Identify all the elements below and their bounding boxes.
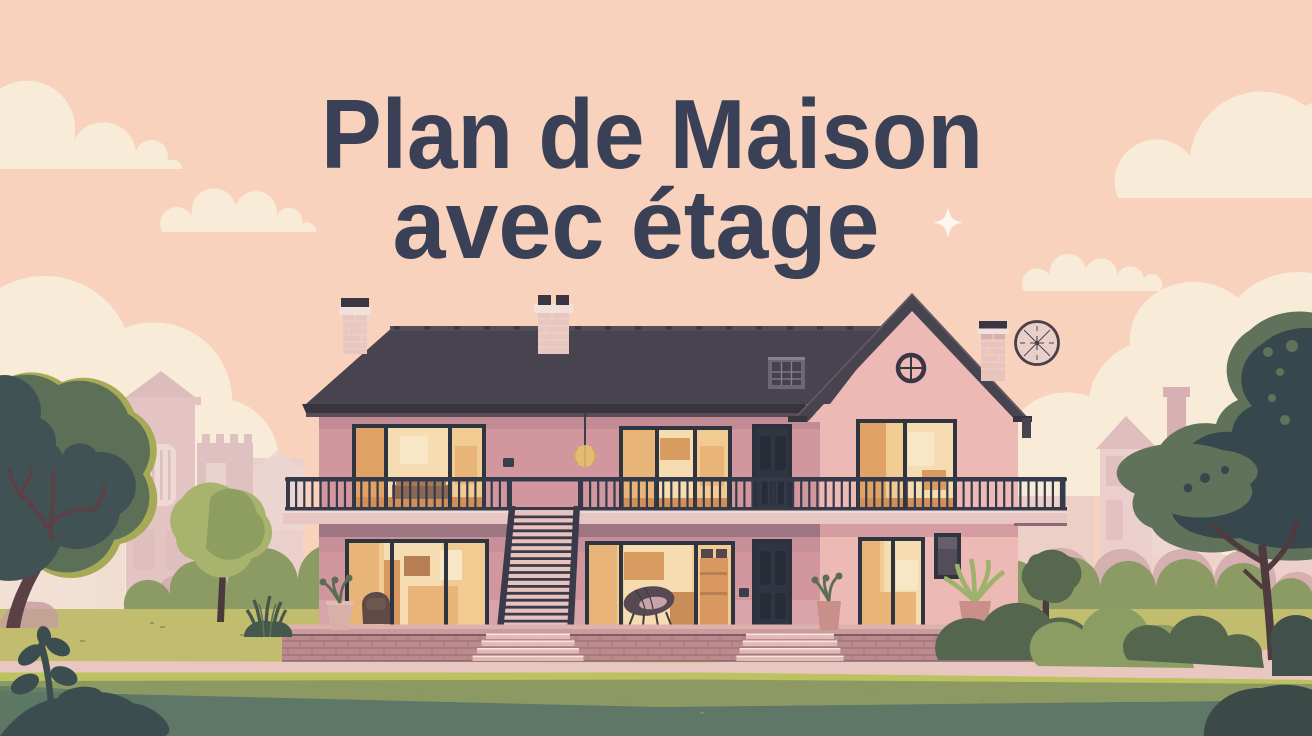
svg-text:avec étage: avec étage xyxy=(393,169,880,279)
